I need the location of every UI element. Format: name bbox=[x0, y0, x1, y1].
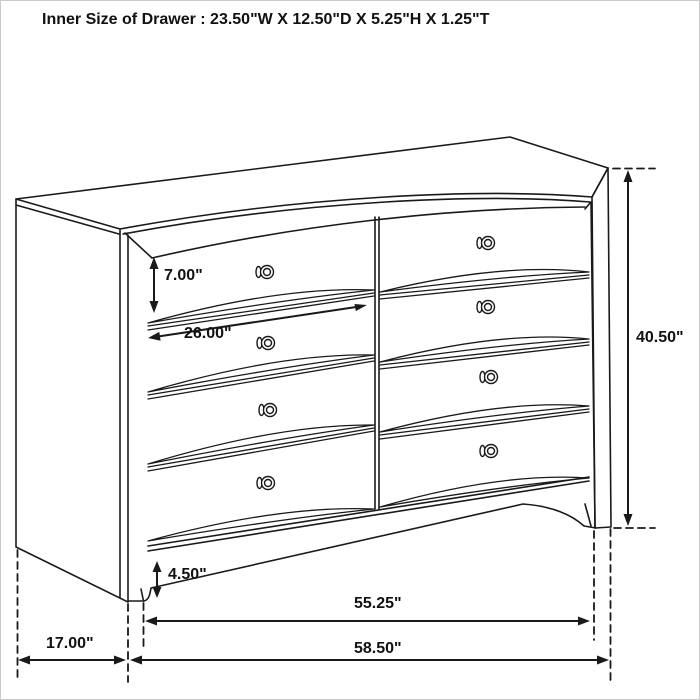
top-slab-left-edge bbox=[16, 205, 119, 234]
drawer-lens bbox=[380, 477, 589, 507]
drawer-lens bbox=[380, 405, 589, 432]
dimension-diagram: Inner Size of Drawer : 23.50"W X 12.50"D… bbox=[0, 0, 700, 700]
drawer-lens bbox=[148, 425, 374, 464]
knob-icon bbox=[259, 404, 277, 417]
drawer-knobs bbox=[256, 237, 498, 490]
dresser-case bbox=[16, 137, 611, 602]
side-depth-label: 17.00" bbox=[46, 635, 94, 653]
drawer-lens bbox=[380, 337, 589, 362]
overall-width-label: 58.50" bbox=[354, 640, 402, 658]
knob-icon bbox=[257, 477, 275, 490]
base-rail-top bbox=[148, 477, 589, 551]
bottom-edge-and-feet bbox=[128, 504, 596, 601]
knob-icon bbox=[477, 301, 495, 314]
front-width-label: 55.25" bbox=[354, 595, 402, 613]
dresser-line-drawing bbox=[0, 0, 700, 700]
top-rail-curve bbox=[152, 207, 585, 258]
base-height-label: 4.50" bbox=[168, 566, 207, 584]
knob-icon bbox=[477, 237, 495, 250]
overall-height-label: 40.50" bbox=[636, 329, 684, 347]
drawer-gap bbox=[148, 293, 374, 330]
drawer-lens bbox=[148, 355, 374, 392]
left-foot-inner-line bbox=[141, 589, 144, 601]
left-side-panel bbox=[16, 199, 128, 602]
drawer-gap bbox=[380, 342, 589, 369]
drawer-width-label: 26.00" bbox=[184, 325, 232, 343]
knob-icon bbox=[480, 445, 498, 458]
knob-icon bbox=[257, 337, 275, 350]
top-rail-bevel-right bbox=[585, 203, 590, 209]
drawing-title: Inner Size of Drawer : 23.50"W X 12.50"D… bbox=[42, 11, 489, 29]
drawer-height-label: 7.00" bbox=[164, 267, 203, 285]
drawer-fronts bbox=[148, 270, 589, 542]
drawer-gap bbox=[380, 275, 589, 299]
knob-icon bbox=[480, 371, 498, 384]
extension-lines bbox=[18, 169, 656, 683]
top-face bbox=[16, 137, 608, 229]
drawer-lens bbox=[148, 290, 374, 323]
right-foot-inner-line bbox=[585, 504, 591, 526]
drawer-lens bbox=[148, 509, 374, 541]
dimension-arrows bbox=[18, 170, 633, 665]
knob-icon bbox=[256, 266, 274, 279]
top-rail-bevel-left bbox=[125, 233, 152, 258]
drawer-gap bbox=[148, 428, 374, 471]
center-divider bbox=[375, 217, 379, 509]
